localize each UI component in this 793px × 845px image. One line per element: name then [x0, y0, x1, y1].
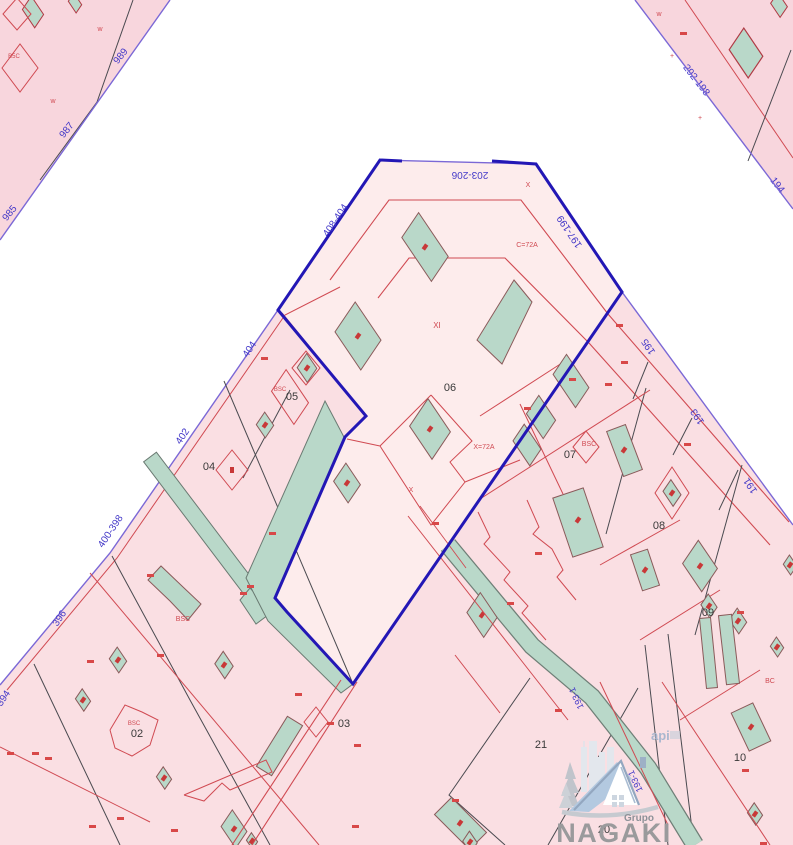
svg-text:08: 08: [653, 520, 665, 532]
svg-text:07: 07: [564, 449, 576, 461]
svg-text:+: +: [698, 115, 702, 122]
svg-text:BSC: BSC: [274, 387, 287, 393]
svg-text:w: w: [655, 11, 662, 18]
svg-text:C=72A: C=72A: [516, 242, 538, 249]
svg-text:w: w: [49, 98, 56, 105]
svg-text:05: 05: [286, 391, 298, 403]
svg-text:203-206: 203-206: [451, 169, 488, 180]
svg-text:B5C: B5C: [8, 54, 20, 60]
svg-text:X=72A: X=72A: [473, 444, 495, 451]
svg-text:09: 09: [702, 607, 714, 619]
svg-text:X: X: [409, 487, 414, 494]
svg-text:w: w: [96, 26, 103, 33]
svg-text:api: api: [651, 728, 670, 743]
svg-text:X: X: [526, 182, 531, 189]
svg-text:NAGAKI: NAGAKI: [556, 818, 672, 845]
svg-text:21: 21: [535, 739, 547, 751]
svg-text:06: 06: [444, 382, 456, 394]
svg-text:BC: BC: [765, 678, 775, 685]
svg-text:02: 02: [131, 728, 143, 740]
svg-text:04: 04: [203, 461, 215, 473]
svg-text:+: +: [670, 53, 674, 60]
svg-text:XI: XI: [433, 321, 441, 330]
svg-text:BSC: BSC: [128, 721, 141, 727]
svg-text:BSC: BSC: [582, 441, 596, 448]
svg-text:03: 03: [338, 718, 350, 730]
svg-text:10: 10: [734, 752, 746, 764]
svg-text:BSC: BSC: [176, 616, 190, 623]
